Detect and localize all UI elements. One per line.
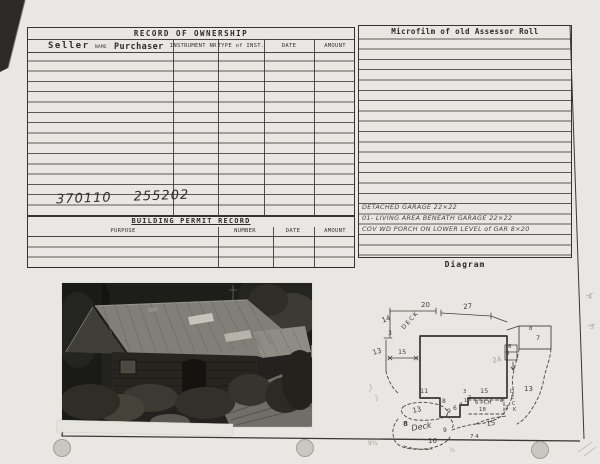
diagram-label: 5 (506, 352, 510, 358)
diagram-label: 9 (447, 409, 451, 415)
diagram-label: 3 (463, 390, 466, 395)
diagram-label: 14 (381, 315, 392, 325)
diagram-label: 2 (468, 396, 471, 401)
diagram-label: 18 (479, 408, 486, 414)
diagram-label: 15 (398, 349, 406, 356)
diagram-label: 4 (588, 295, 592, 301)
diagram-label: 6 (508, 345, 512, 351)
diagram-label: 6 (453, 406, 457, 412)
diagram-label: K (513, 408, 516, 413)
diagram-label: 13 (524, 386, 533, 393)
diagram-label: 7 (536, 335, 540, 342)
diagram-label: ⅞ (449, 448, 455, 454)
diagram-label: 15 (480, 388, 488, 395)
diagram-label: 8 (500, 399, 504, 405)
diagram-label: DECK (401, 310, 421, 331)
diagram-label: 13 (372, 348, 382, 357)
diagram-label: 1 (464, 399, 467, 404)
diagram-label: 24 (492, 356, 502, 365)
diagram-label: 20 (421, 302, 430, 309)
diagram-label: 13 (412, 406, 422, 415)
diagram-label: 27 (463, 303, 473, 311)
diagram-label: 2 (505, 406, 509, 412)
diagram-label: 9 (443, 428, 447, 434)
diagram-label: 11 (420, 388, 428, 395)
diagram-label: 3 (590, 325, 594, 331)
diagram-label: 15 (486, 420, 496, 428)
diagram-labels: 202714DECK31315118964123156 PCH188287651… (0, 0, 600, 464)
diagram-label: Deck (411, 422, 432, 433)
diagram-label: 8 (442, 399, 446, 405)
assessor-record-card: RECORD OF OWNERSHIP Seller NAME Purchase… (0, 0, 600, 464)
diagram-label: 9¼ (368, 441, 378, 447)
diagram-label: 3 (388, 331, 392, 337)
diagram-label: 8 (529, 327, 533, 333)
diagram-label: 6 PCH (475, 401, 492, 407)
diagram-label: 4 (459, 403, 463, 409)
diagram-label: 7 4 (470, 435, 479, 441)
diagram-label: 8 (403, 421, 408, 428)
diagram-label: 16 (428, 438, 437, 445)
